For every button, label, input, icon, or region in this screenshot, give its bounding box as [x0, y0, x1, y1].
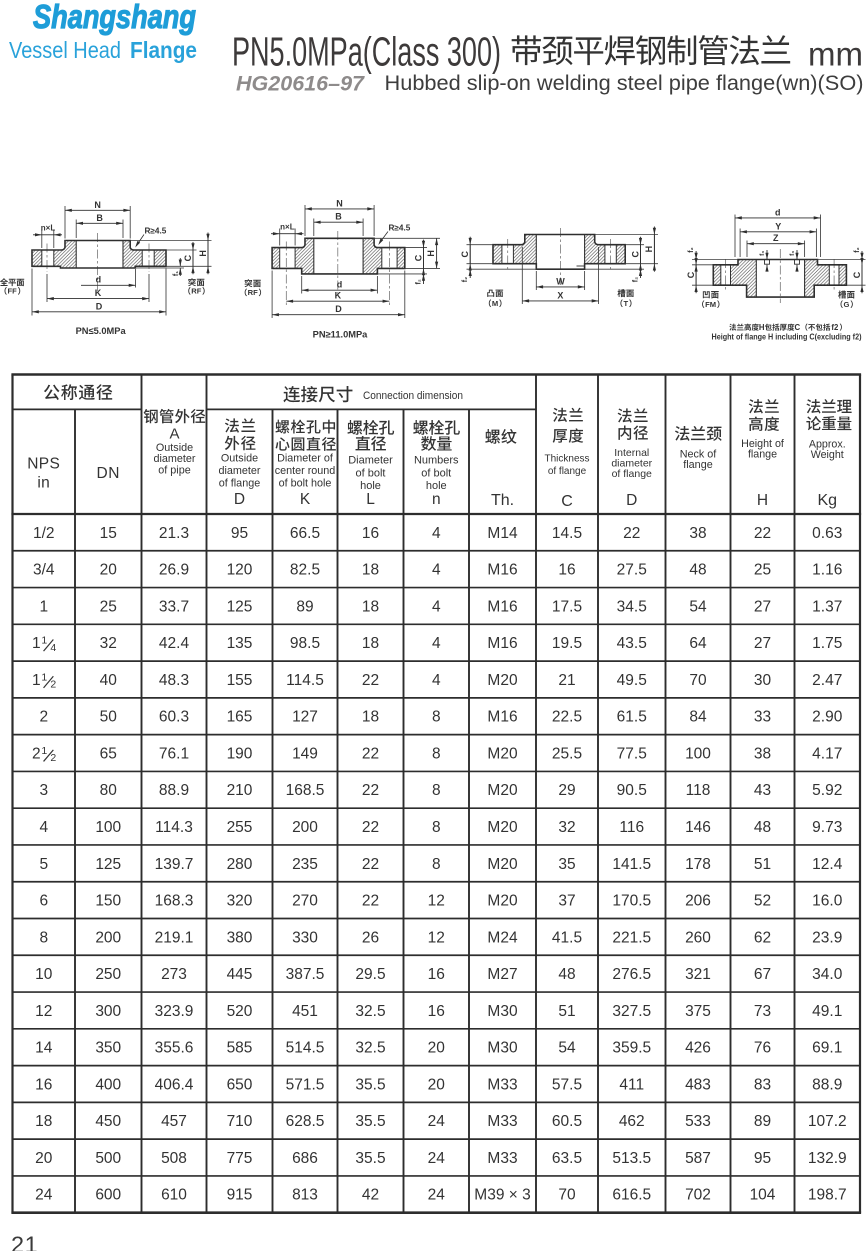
svg-text:32.5: 32.5 — [355, 1040, 385, 1057]
svg-text:320: 320 — [227, 893, 253, 910]
svg-text:250: 250 — [95, 966, 121, 983]
svg-text:of pipe: of pipe — [158, 464, 190, 476]
svg-text:450: 450 — [95, 1113, 121, 1130]
svg-text:22: 22 — [362, 745, 379, 762]
svg-text:M27: M27 — [487, 966, 517, 983]
svg-text:104: 104 — [750, 1187, 776, 1204]
svg-text:flange: flange — [748, 449, 777, 461]
svg-text:610: 610 — [161, 1187, 187, 1204]
svg-text:132.9: 132.9 — [808, 1150, 847, 1167]
svg-text:2: 2 — [39, 709, 48, 726]
svg-text:26.9: 26.9 — [159, 562, 189, 579]
svg-text:600: 600 — [95, 1187, 121, 1204]
svg-text:Numbers: Numbers — [414, 455, 459, 467]
svg-text:M: M — [492, 299, 498, 308]
svg-text:D: D — [96, 301, 103, 311]
svg-text:M20: M20 — [487, 819, 518, 836]
svg-text:T: T — [623, 299, 628, 308]
svg-text:D: D — [335, 304, 342, 314]
svg-text:Diameter of: Diameter of — [277, 453, 334, 465]
svg-text:16: 16 — [362, 525, 379, 542]
svg-text:21.3: 21.3 — [159, 525, 189, 542]
svg-text:533: 533 — [685, 1113, 711, 1130]
svg-text:20: 20 — [428, 1040, 446, 1057]
svg-text:48: 48 — [558, 966, 575, 983]
svg-text:Flange: Flange — [130, 37, 197, 63]
svg-text:89: 89 — [754, 1113, 771, 1130]
svg-text:41.5: 41.5 — [552, 929, 582, 946]
svg-text:in: in — [37, 475, 50, 492]
svg-text:35: 35 — [558, 856, 575, 873]
svg-text:32.5: 32.5 — [355, 1003, 385, 1020]
svg-text:90.5: 90.5 — [617, 782, 647, 799]
svg-text:411: 411 — [619, 1076, 644, 1093]
svg-text:C: C — [183, 254, 193, 261]
svg-text:300: 300 — [95, 1003, 121, 1020]
svg-text:149: 149 — [292, 745, 318, 762]
svg-text:33: 33 — [754, 709, 771, 726]
svg-text:24: 24 — [35, 1187, 53, 1204]
svg-text:18: 18 — [362, 635, 379, 652]
svg-text:17.5: 17.5 — [552, 598, 582, 615]
svg-text:Shangshang: Shangshang — [33, 0, 196, 36]
svg-text:135: 135 — [227, 635, 253, 652]
svg-text:1: 1 — [41, 745, 47, 757]
svg-text:NPS: NPS — [27, 455, 60, 472]
svg-text:FM: FM — [705, 300, 716, 309]
svg-text:114.3: 114.3 — [155, 819, 193, 836]
svg-text:84: 84 — [689, 709, 707, 726]
svg-text:24: 24 — [428, 1150, 446, 1167]
svg-text:273: 273 — [161, 966, 187, 983]
svg-text:2.90: 2.90 — [812, 709, 843, 726]
svg-text:4: 4 — [432, 672, 441, 689]
svg-text:of flange: of flange — [612, 468, 652, 480]
svg-text:62: 62 — [754, 929, 771, 946]
svg-text:C: C — [561, 493, 573, 510]
svg-text:C: C — [413, 254, 423, 261]
svg-text:Z: Z — [773, 233, 779, 243]
svg-text:21: 21 — [558, 672, 575, 689]
svg-text:1: 1 — [32, 672, 41, 689]
svg-text:34.5: 34.5 — [617, 598, 647, 615]
svg-text:flange: flange — [683, 459, 712, 471]
svg-text:57.5: 57.5 — [552, 1076, 582, 1093]
svg-text:650: 650 — [227, 1076, 253, 1093]
svg-text:M33: M33 — [487, 1113, 517, 1130]
svg-text:18: 18 — [35, 1113, 52, 1130]
svg-text:83: 83 — [754, 1076, 771, 1093]
svg-text:diameter: diameter — [153, 453, 195, 465]
svg-text:8: 8 — [432, 819, 441, 836]
svg-text:387.5: 387.5 — [286, 966, 325, 983]
svg-text:M16: M16 — [487, 709, 517, 726]
svg-text:Height of flange H including C: Height of flange H including C(excluding… — [712, 332, 862, 342]
svg-text:3/4: 3/4 — [33, 562, 55, 579]
svg-text:462: 462 — [619, 1113, 645, 1130]
svg-text:HG20616–97: HG20616–97 — [236, 72, 365, 95]
svg-text:48.3: 48.3 — [159, 672, 189, 689]
svg-text:f₁: f₁ — [173, 271, 180, 276]
svg-text:4: 4 — [432, 525, 441, 542]
svg-text:139.7: 139.7 — [155, 856, 194, 873]
svg-text:35.5: 35.5 — [355, 1150, 385, 1167]
svg-text:M30: M30 — [487, 1003, 518, 1020]
svg-text:168.5: 168.5 — [286, 782, 325, 799]
svg-text:2: 2 — [50, 679, 56, 691]
svg-text:813: 813 — [292, 1187, 318, 1204]
svg-text:67: 67 — [754, 966, 771, 983]
svg-text:35.5: 35.5 — [355, 1113, 385, 1130]
svg-text:571.5: 571.5 — [286, 1076, 325, 1093]
svg-text:210: 210 — [227, 782, 253, 799]
svg-text:155: 155 — [227, 672, 253, 689]
svg-text:PN≥11.0MPa: PN≥11.0MPa — [313, 329, 369, 339]
svg-text:8: 8 — [432, 745, 441, 762]
svg-text:150: 150 — [95, 893, 121, 910]
svg-text:H: H — [426, 250, 436, 257]
svg-text:Outside: Outside — [156, 442, 193, 454]
svg-text:33.7: 33.7 — [159, 598, 189, 615]
svg-text:25: 25 — [754, 562, 771, 579]
svg-text:51: 51 — [754, 856, 771, 873]
svg-text:120: 120 — [227, 562, 253, 579]
svg-text:M16: M16 — [487, 635, 517, 652]
svg-text:4.17: 4.17 — [812, 745, 842, 762]
svg-text:f₂: f₂ — [854, 247, 861, 252]
svg-text:330: 330 — [292, 929, 318, 946]
svg-text:PN5.0MPa(Class 300): PN5.0MPa(Class 300) — [232, 29, 501, 75]
svg-text:445: 445 — [227, 966, 253, 983]
svg-text:200: 200 — [95, 929, 121, 946]
svg-text:K: K — [300, 491, 311, 508]
svg-text:49.5: 49.5 — [617, 672, 647, 689]
svg-text:37: 37 — [558, 893, 575, 910]
svg-text:260: 260 — [685, 929, 711, 946]
svg-text:48: 48 — [689, 562, 706, 579]
svg-text:51: 51 — [558, 1003, 575, 1020]
svg-text:f₂: f₂ — [633, 277, 640, 282]
svg-text:54: 54 — [689, 598, 707, 615]
svg-text:16.0: 16.0 — [812, 893, 843, 910]
svg-text:C: C — [686, 271, 696, 278]
svg-text:125: 125 — [227, 598, 253, 615]
svg-text:M20: M20 — [487, 672, 518, 689]
svg-text:f₃: f₃ — [759, 251, 766, 256]
svg-text:4: 4 — [432, 598, 441, 615]
svg-text:20: 20 — [35, 1150, 53, 1167]
svg-text:H: H — [757, 492, 768, 509]
svg-text:406.4: 406.4 — [155, 1076, 194, 1093]
svg-text:Diameter: Diameter — [348, 455, 393, 467]
svg-text:60.3: 60.3 — [159, 709, 189, 726]
svg-text:18: 18 — [362, 598, 379, 615]
svg-text:628.5: 628.5 — [286, 1113, 325, 1130]
svg-text:16: 16 — [35, 1076, 52, 1093]
svg-text:323.9: 323.9 — [155, 1003, 194, 1020]
svg-text:63.5: 63.5 — [552, 1150, 582, 1167]
svg-text:76: 76 — [754, 1040, 771, 1057]
svg-text:B: B — [96, 213, 103, 223]
svg-text:355.6: 355.6 — [155, 1040, 194, 1057]
svg-text:98.5: 98.5 — [290, 635, 320, 652]
svg-text:H: H — [198, 250, 208, 257]
svg-text:hole: hole — [426, 480, 447, 492]
svg-text:center round: center round — [275, 465, 336, 477]
svg-text:95: 95 — [754, 1150, 771, 1167]
svg-text:B: B — [335, 212, 342, 222]
svg-text:168.3: 168.3 — [155, 893, 194, 910]
svg-text:f₃: f₃ — [789, 251, 796, 256]
svg-text:1/2: 1/2 — [33, 525, 55, 542]
svg-text:70: 70 — [558, 1187, 576, 1204]
svg-text:3: 3 — [39, 782, 48, 799]
svg-text:76.1: 76.1 — [159, 745, 189, 762]
svg-text:686: 686 — [292, 1150, 318, 1167]
svg-text:N: N — [336, 198, 343, 208]
svg-text:321: 321 — [685, 966, 711, 983]
svg-text:270: 270 — [292, 893, 318, 910]
svg-text:n×L: n×L — [280, 223, 295, 232]
svg-text:W: W — [556, 276, 565, 286]
svg-text:118: 118 — [686, 782, 711, 799]
svg-text:34.0: 34.0 — [812, 966, 843, 983]
svg-text:27: 27 — [754, 635, 771, 652]
svg-text:219.1: 219.1 — [155, 929, 194, 946]
svg-text:451: 451 — [292, 1003, 318, 1020]
svg-text:12: 12 — [428, 893, 445, 910]
svg-text:20: 20 — [428, 1076, 446, 1093]
svg-text:43.5: 43.5 — [617, 635, 647, 652]
svg-text:42: 42 — [362, 1187, 379, 1204]
svg-text:16: 16 — [428, 966, 445, 983]
svg-text:d: d — [775, 207, 781, 217]
svg-text:A: A — [169, 425, 179, 442]
svg-text:114.5: 114.5 — [286, 672, 324, 689]
svg-text:C: C — [630, 250, 640, 257]
svg-text:4: 4 — [432, 635, 441, 652]
svg-text:16: 16 — [558, 562, 575, 579]
svg-text:18: 18 — [362, 562, 379, 579]
svg-text:65: 65 — [100, 745, 117, 762]
svg-text:1: 1 — [39, 598, 48, 615]
svg-text:Outside: Outside — [221, 453, 258, 465]
svg-text:8: 8 — [39, 929, 48, 946]
svg-text:22.5: 22.5 — [552, 709, 582, 726]
svg-text:M20: M20 — [487, 782, 518, 799]
svg-text:27: 27 — [754, 598, 771, 615]
svg-text:of flange: of flange — [548, 466, 587, 477]
svg-text:24: 24 — [428, 1187, 446, 1204]
svg-text:235: 235 — [292, 856, 318, 873]
svg-text:M20: M20 — [487, 893, 518, 910]
svg-text:198.7: 198.7 — [808, 1187, 847, 1204]
svg-text:23.9: 23.9 — [812, 929, 842, 946]
svg-text:710: 710 — [227, 1113, 253, 1130]
svg-text:127: 127 — [292, 709, 318, 726]
svg-text:49.1: 49.1 — [812, 1003, 842, 1020]
svg-text:520: 520 — [227, 1003, 253, 1020]
svg-text:Kg: Kg — [817, 492, 837, 509]
svg-text:73: 73 — [754, 1003, 771, 1020]
svg-text:1: 1 — [41, 671, 47, 683]
svg-text:2: 2 — [32, 745, 41, 762]
svg-text:4: 4 — [50, 642, 56, 654]
svg-text:M20: M20 — [487, 745, 518, 762]
svg-text:375: 375 — [685, 1003, 711, 1020]
svg-text:8: 8 — [432, 856, 441, 873]
svg-text:6: 6 — [39, 893, 48, 910]
svg-text:77.5: 77.5 — [617, 745, 647, 762]
svg-text:43: 43 — [754, 782, 771, 799]
svg-text:95: 95 — [231, 525, 248, 542]
svg-text:1: 1 — [41, 635, 47, 647]
svg-text:D: D — [234, 491, 245, 508]
svg-text:22: 22 — [623, 525, 640, 542]
svg-text:775: 775 — [227, 1150, 253, 1167]
svg-text:89: 89 — [296, 598, 313, 615]
svg-text:M16: M16 — [487, 598, 517, 615]
svg-text:1.37: 1.37 — [812, 598, 842, 615]
svg-text:M33: M33 — [487, 1076, 517, 1093]
svg-text:29: 29 — [558, 782, 575, 799]
svg-text:587: 587 — [685, 1150, 711, 1167]
svg-text:359.5: 359.5 — [612, 1040, 651, 1057]
svg-text:61.5: 61.5 — [617, 709, 647, 726]
svg-text:d: d — [96, 275, 102, 285]
svg-text:15: 15 — [100, 525, 117, 542]
svg-text:165: 165 — [227, 709, 253, 726]
svg-text:1: 1 — [32, 635, 41, 652]
svg-text:221.5: 221.5 — [612, 929, 651, 946]
svg-text:32: 32 — [558, 819, 575, 836]
svg-text:38: 38 — [689, 525, 706, 542]
svg-text:8: 8 — [432, 709, 441, 726]
svg-text:f₂: f₂ — [462, 277, 469, 282]
svg-text:18: 18 — [362, 709, 379, 726]
svg-text:350: 350 — [95, 1040, 121, 1057]
svg-text:483: 483 — [685, 1076, 711, 1093]
svg-text:N: N — [94, 200, 101, 210]
svg-text:of bolt: of bolt — [421, 468, 451, 480]
svg-text:of bolt: of bolt — [356, 468, 386, 480]
svg-text:M20: M20 — [487, 856, 518, 873]
svg-text:88.9: 88.9 — [812, 1076, 842, 1093]
svg-text:M24: M24 — [487, 929, 518, 946]
svg-text:40: 40 — [100, 672, 118, 689]
svg-text:22: 22 — [754, 525, 771, 542]
svg-text:400: 400 — [95, 1076, 121, 1093]
svg-text:616.5: 616.5 — [612, 1187, 651, 1204]
svg-text:FF: FF — [8, 287, 18, 296]
svg-text:513.5: 513.5 — [612, 1150, 651, 1167]
svg-text:64: 64 — [689, 635, 707, 652]
svg-text:RF: RF — [248, 288, 258, 297]
svg-text:n: n — [432, 491, 441, 508]
svg-text:M16: M16 — [487, 562, 517, 579]
svg-text:K: K — [95, 288, 102, 298]
svg-text:R≥4.5: R≥4.5 — [389, 223, 411, 232]
svg-text:Connection dimension: Connection dimension — [363, 390, 463, 402]
svg-text:D: D — [626, 492, 637, 509]
svg-text:4: 4 — [432, 562, 441, 579]
svg-text:915: 915 — [227, 1187, 253, 1204]
svg-text:26: 26 — [362, 929, 379, 946]
svg-text:178: 178 — [685, 856, 711, 873]
svg-text:100: 100 — [95, 819, 121, 836]
svg-text:702: 702 — [685, 1187, 711, 1204]
svg-text:22: 22 — [362, 893, 379, 910]
svg-text:585: 585 — [227, 1040, 253, 1057]
svg-text:100: 100 — [685, 745, 711, 762]
svg-text:H: H — [644, 246, 654, 253]
svg-text:4: 4 — [39, 819, 48, 836]
svg-text:30: 30 — [754, 672, 772, 689]
svg-text:9.73: 9.73 — [812, 819, 842, 836]
svg-text:42.4: 42.4 — [159, 635, 190, 652]
svg-text:12: 12 — [428, 929, 445, 946]
svg-text:27.5: 27.5 — [617, 562, 647, 579]
svg-text:141.5: 141.5 — [612, 856, 651, 873]
svg-text:22: 22 — [362, 672, 379, 689]
svg-text:35.5: 35.5 — [355, 1076, 385, 1093]
svg-text:280: 280 — [227, 856, 253, 873]
svg-text:146: 146 — [685, 819, 711, 836]
svg-text:82.5: 82.5 — [290, 562, 320, 579]
svg-text:12: 12 — [35, 1003, 52, 1020]
svg-text:Weight: Weight — [811, 449, 844, 461]
svg-text:hole: hole — [360, 480, 381, 492]
svg-text:M39 × 3: M39 × 3 — [474, 1187, 530, 1204]
svg-text:69.1: 69.1 — [812, 1040, 842, 1057]
svg-text:116: 116 — [619, 819, 644, 836]
svg-text:C: C — [460, 250, 470, 257]
svg-text:25: 25 — [100, 598, 117, 615]
svg-text:PN≤5.0MPa: PN≤5.0MPa — [76, 326, 127, 336]
svg-text:R≥4.5: R≥4.5 — [145, 226, 167, 235]
svg-text:C: C — [852, 271, 862, 278]
svg-text:70: 70 — [689, 672, 707, 689]
svg-text:22: 22 — [362, 819, 379, 836]
svg-text:88.9: 88.9 — [159, 782, 189, 799]
svg-text:2.47: 2.47 — [812, 672, 842, 689]
svg-text:diameter: diameter — [218, 465, 260, 477]
svg-text:54: 54 — [558, 1040, 576, 1057]
svg-text:16: 16 — [428, 1003, 445, 1020]
svg-text:RF: RF — [191, 287, 201, 296]
svg-text:20: 20 — [100, 562, 118, 579]
svg-text:Vessel Head: Vessel Head — [9, 37, 121, 63]
svg-text:f₂: f₂ — [416, 279, 423, 284]
svg-text:206: 206 — [685, 893, 711, 910]
svg-text:66.5: 66.5 — [290, 525, 320, 542]
svg-text:5.92: 5.92 — [812, 782, 842, 799]
svg-text:19.5: 19.5 — [552, 635, 582, 652]
svg-text:22: 22 — [362, 856, 379, 873]
svg-text:Y: Y — [775, 221, 781, 231]
svg-text:8: 8 — [432, 782, 441, 799]
svg-text:DN: DN — [97, 465, 120, 482]
svg-text:G: G — [844, 300, 850, 309]
svg-text:0.63: 0.63 — [812, 525, 842, 542]
svg-text:200: 200 — [292, 819, 318, 836]
svg-text:1.75: 1.75 — [812, 635, 842, 652]
svg-text:f₂: f₂ — [688, 247, 695, 252]
svg-text:457: 457 — [161, 1113, 187, 1130]
svg-text:12.4: 12.4 — [812, 856, 843, 873]
svg-text:L: L — [366, 491, 375, 508]
svg-text:Th.: Th. — [491, 492, 514, 509]
